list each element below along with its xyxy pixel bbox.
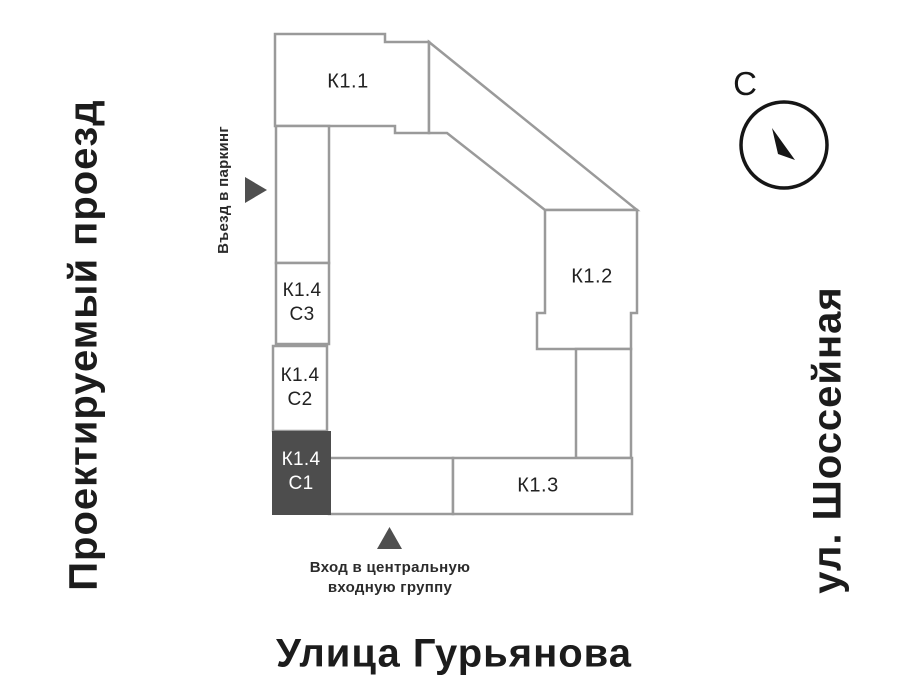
building-label-k1-4-c2: К1.4 С2 xyxy=(281,364,320,412)
building-label-k1-4-c1-line2: С1 xyxy=(282,472,321,496)
building-label-k1-4-c2-line1: К1.4 xyxy=(281,364,320,388)
central-entrance-label-line2: входную группу xyxy=(310,578,470,598)
building-label-k1-1: К1.1 xyxy=(327,71,368,94)
building-label-k1-4-c1-line1: К1.4 xyxy=(282,448,321,472)
building-band-left-shape[interactable] xyxy=(329,458,453,514)
building-label-k1-4-c2-line2: С2 xyxy=(281,388,320,412)
central-entrance-label: Вход в центральную входную группу xyxy=(310,558,470,598)
parking-arrow-icon xyxy=(245,177,267,203)
compass-needle-icon xyxy=(772,128,795,160)
building-label-k1-3: К1.3 xyxy=(517,475,558,498)
street-label-bottom: Улица Гурьянова xyxy=(276,632,632,677)
building-label-k1-4-c3-line1: К1.4 xyxy=(283,279,322,303)
building-label-k1-2: К1.2 xyxy=(571,266,612,289)
central-entrance-label-line1: Вход в центральную xyxy=(310,558,470,578)
site-plan: Проектируемый проезд ул. Шоссейная Улица… xyxy=(0,0,900,700)
entrance-arrow-icon xyxy=(377,527,402,549)
street-label-right: ул. Шоссейная xyxy=(806,286,851,594)
parking-entrance-label: Въезд в паркинг xyxy=(214,126,234,254)
compass-north-label: С xyxy=(733,65,757,103)
building-strip-shape[interactable] xyxy=(276,126,329,263)
building-connector-shape[interactable] xyxy=(576,349,631,458)
building-label-k1-4-c3-line2: С3 xyxy=(283,303,322,327)
building-wing-shape[interactable] xyxy=(429,42,637,210)
building-label-k1-4-c3: К1.4 С3 xyxy=(283,279,322,327)
building-label-k1-4-c1: К1.4 С1 xyxy=(282,448,321,496)
street-label-left: Проектируемый проезд xyxy=(62,99,107,590)
